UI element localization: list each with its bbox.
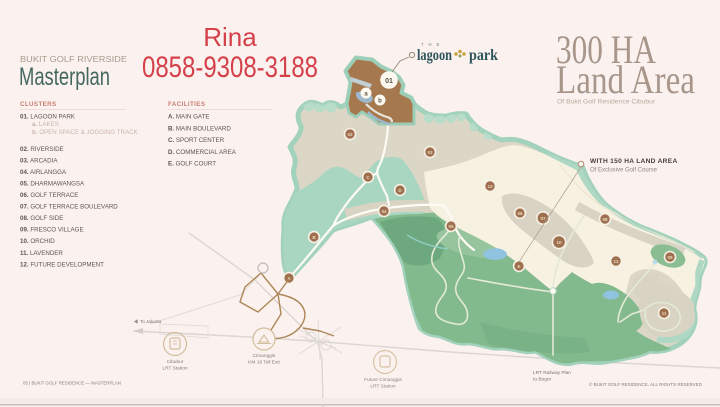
svg-text:03. ARCADIA: 03. ARCADIA [20,158,58,165]
svg-text:12: 12 [613,259,619,264]
svg-text:09: 09 [667,255,673,260]
svg-text:01. LAGOON PARK: 01. LAGOON PARK [20,114,76,121]
svg-text:KM 19 Toll Exit: KM 19 Toll Exit [248,360,280,366]
svg-text:Of Bukit Golf Residence Cibubu: Of Bukit Golf Residence Cibubur [557,99,656,106]
svg-text:08: 08 [602,217,608,222]
svg-text:04. AIRLANGGA: 04. AIRLANGGA [20,169,67,176]
svg-text:LRT Station: LRT Station [162,366,187,372]
svg-text:Land Area: Land Area [556,57,695,102]
svg-text:11: 11 [662,311,667,316]
svg-text:06. GOLF TERRACE: 06. GOLF TERRACE [20,192,78,199]
svg-text:11. LAVENDER: 11. LAVENDER [20,250,63,257]
svg-text:b: b [378,99,382,105]
svg-text:05: 05 [448,224,454,229]
svg-text:D. COMMERCIAL AREA: D. COMMERCIAL AREA [168,149,237,156]
svg-text:A. MAIN GATE: A. MAIN GATE [168,114,209,121]
svg-text:© BUKIT GOLF RESIDENCE. ALL RI: © BUKIT GOLF RESIDENCE. ALL RIGHTS RESER… [589,381,703,387]
svg-text:03: 03 [427,150,433,155]
svg-text:05. DHARMAWANGSA: 05. DHARMAWANGSA [20,181,85,188]
svg-text:To Jakarta: To Jakarta [140,319,162,324]
svg-text:a. LAKES: a. LAKES [32,121,59,128]
svg-text:Masterplan: Masterplan [19,63,110,91]
svg-text:to Bogor: to Bogor [533,377,552,383]
svg-text:park: park [469,47,498,64]
svg-text:E: E [517,264,520,269]
svg-text:07. GOLF TERRACE BOULEVARD: 07. GOLF TERRACE BOULEVARD [20,204,118,211]
svg-text:Future Cimanggis: Future Cimanggis [364,377,402,383]
svg-text:01: 01 [385,78,393,85]
svg-text:FACILITIES: FACILITIES [168,101,205,108]
svg-text:07: 07 [540,216,546,221]
svg-text:E. GOLF COURT: E. GOLF COURT [168,161,216,168]
svg-text:06: 06 [517,211,523,216]
svg-text:09. FRESCO VILLAGE: 09. FRESCO VILLAGE [20,227,84,234]
svg-text:LRT Station: LRT Station [370,384,395,390]
svg-text:08. GOLF SIDE: 08. GOLF SIDE [20,215,63,222]
svg-text:02. RIVERSIDE: 02. RIVERSIDE [20,146,64,153]
svg-text:b. OPEN SPACE & JOGGING TRACK: b. OPEN SPACE & JOGGING TRACK [32,129,139,136]
svg-text:Cibubur: Cibubur [167,359,184,365]
svg-text:05 | BUKIT GOLF RESIDENCE —: 05 | BUKIT GOLF RESIDENCE — MASTERPLAN [23,381,121,386]
svg-text:10. ORCHID: 10. ORCHID [20,238,55,245]
svg-text:LRT Railway Plan: LRT Railway Plan [533,370,571,376]
svg-text:Rina: Rina [203,22,257,52]
svg-text:12. FUTURE DEVELOPMENT: 12. FUTURE DEVELOPMENT [20,261,104,268]
svg-text:Of Exclusive Golf Course: Of Exclusive Golf Course [590,168,658,174]
svg-text:WITH 150 HA LAND AREA: WITH 150 HA LAND AREA [590,158,678,165]
svg-text:10: 10 [556,240,562,245]
svg-text:C. SPORT CENTER: C. SPORT CENTER [168,137,225,144]
svg-text:lagoon: lagoon [417,47,452,64]
svg-text:02: 02 [347,132,353,137]
svg-text:Cimanggis: Cimanggis [253,353,276,359]
svg-text:13: 13 [487,184,493,189]
svg-text:04: 04 [381,209,387,214]
svg-text:B. MAIN BOULEVARD: B. MAIN BOULEVARD [168,125,231,132]
svg-text:0858-9308-3188: 0858-9308-3188 [142,51,318,84]
svg-text:CLUSTERS: CLUSTERS [20,101,57,108]
